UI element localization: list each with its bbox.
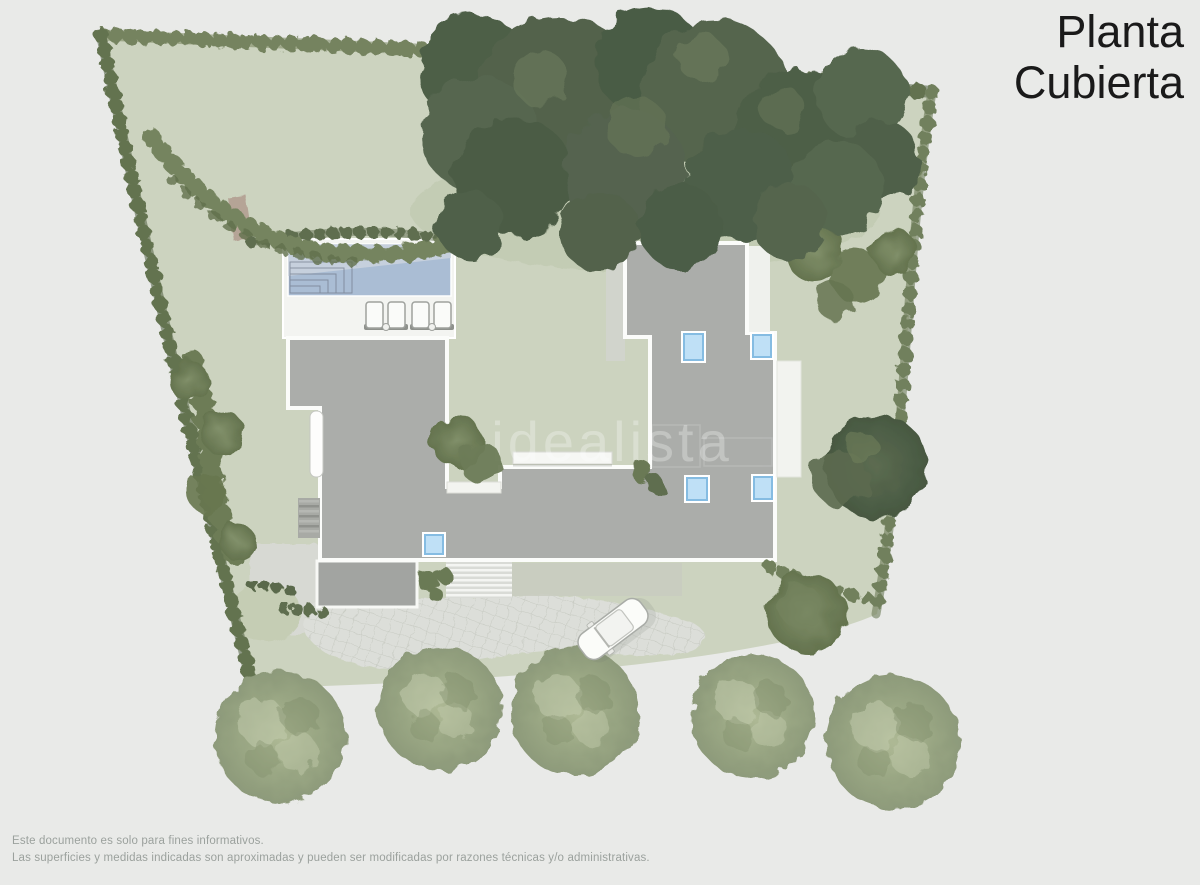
dark-tree-mass xyxy=(420,7,920,272)
tree xyxy=(214,671,346,803)
annex-roof xyxy=(317,561,417,607)
title-line-1: Planta xyxy=(1014,6,1184,57)
tree xyxy=(511,648,639,776)
title-line-2: Cubierta xyxy=(1014,57,1184,108)
skylight xyxy=(422,532,446,557)
roof-terrace-strip-north xyxy=(749,246,770,332)
entrance-steps xyxy=(446,562,512,598)
facade-pillar xyxy=(310,411,323,477)
skylight xyxy=(684,475,710,503)
tree xyxy=(378,646,502,770)
disclaimer: Este documento es solo para fines inform… xyxy=(12,833,650,868)
page-title: Planta Cubierta xyxy=(1014,6,1184,109)
site-plan-drawing: idealista xyxy=(0,0,1200,885)
roof-plan-page: idealista xyxy=(0,0,1200,885)
disclaimer-line-1: Este documento es solo para fines inform… xyxy=(12,833,650,850)
tree xyxy=(826,675,960,809)
watermark-text: idealista xyxy=(491,410,732,473)
tree xyxy=(691,654,815,778)
skylight xyxy=(681,331,706,363)
terrace-strip-east xyxy=(777,361,801,477)
disclaimer-line-2: Las superficies y medidas indicadas son … xyxy=(12,850,650,867)
skylight xyxy=(751,474,775,502)
courtyard-ledge xyxy=(447,482,501,493)
west-steps xyxy=(298,498,320,538)
skylight xyxy=(750,332,774,360)
entry-landing xyxy=(512,563,682,596)
